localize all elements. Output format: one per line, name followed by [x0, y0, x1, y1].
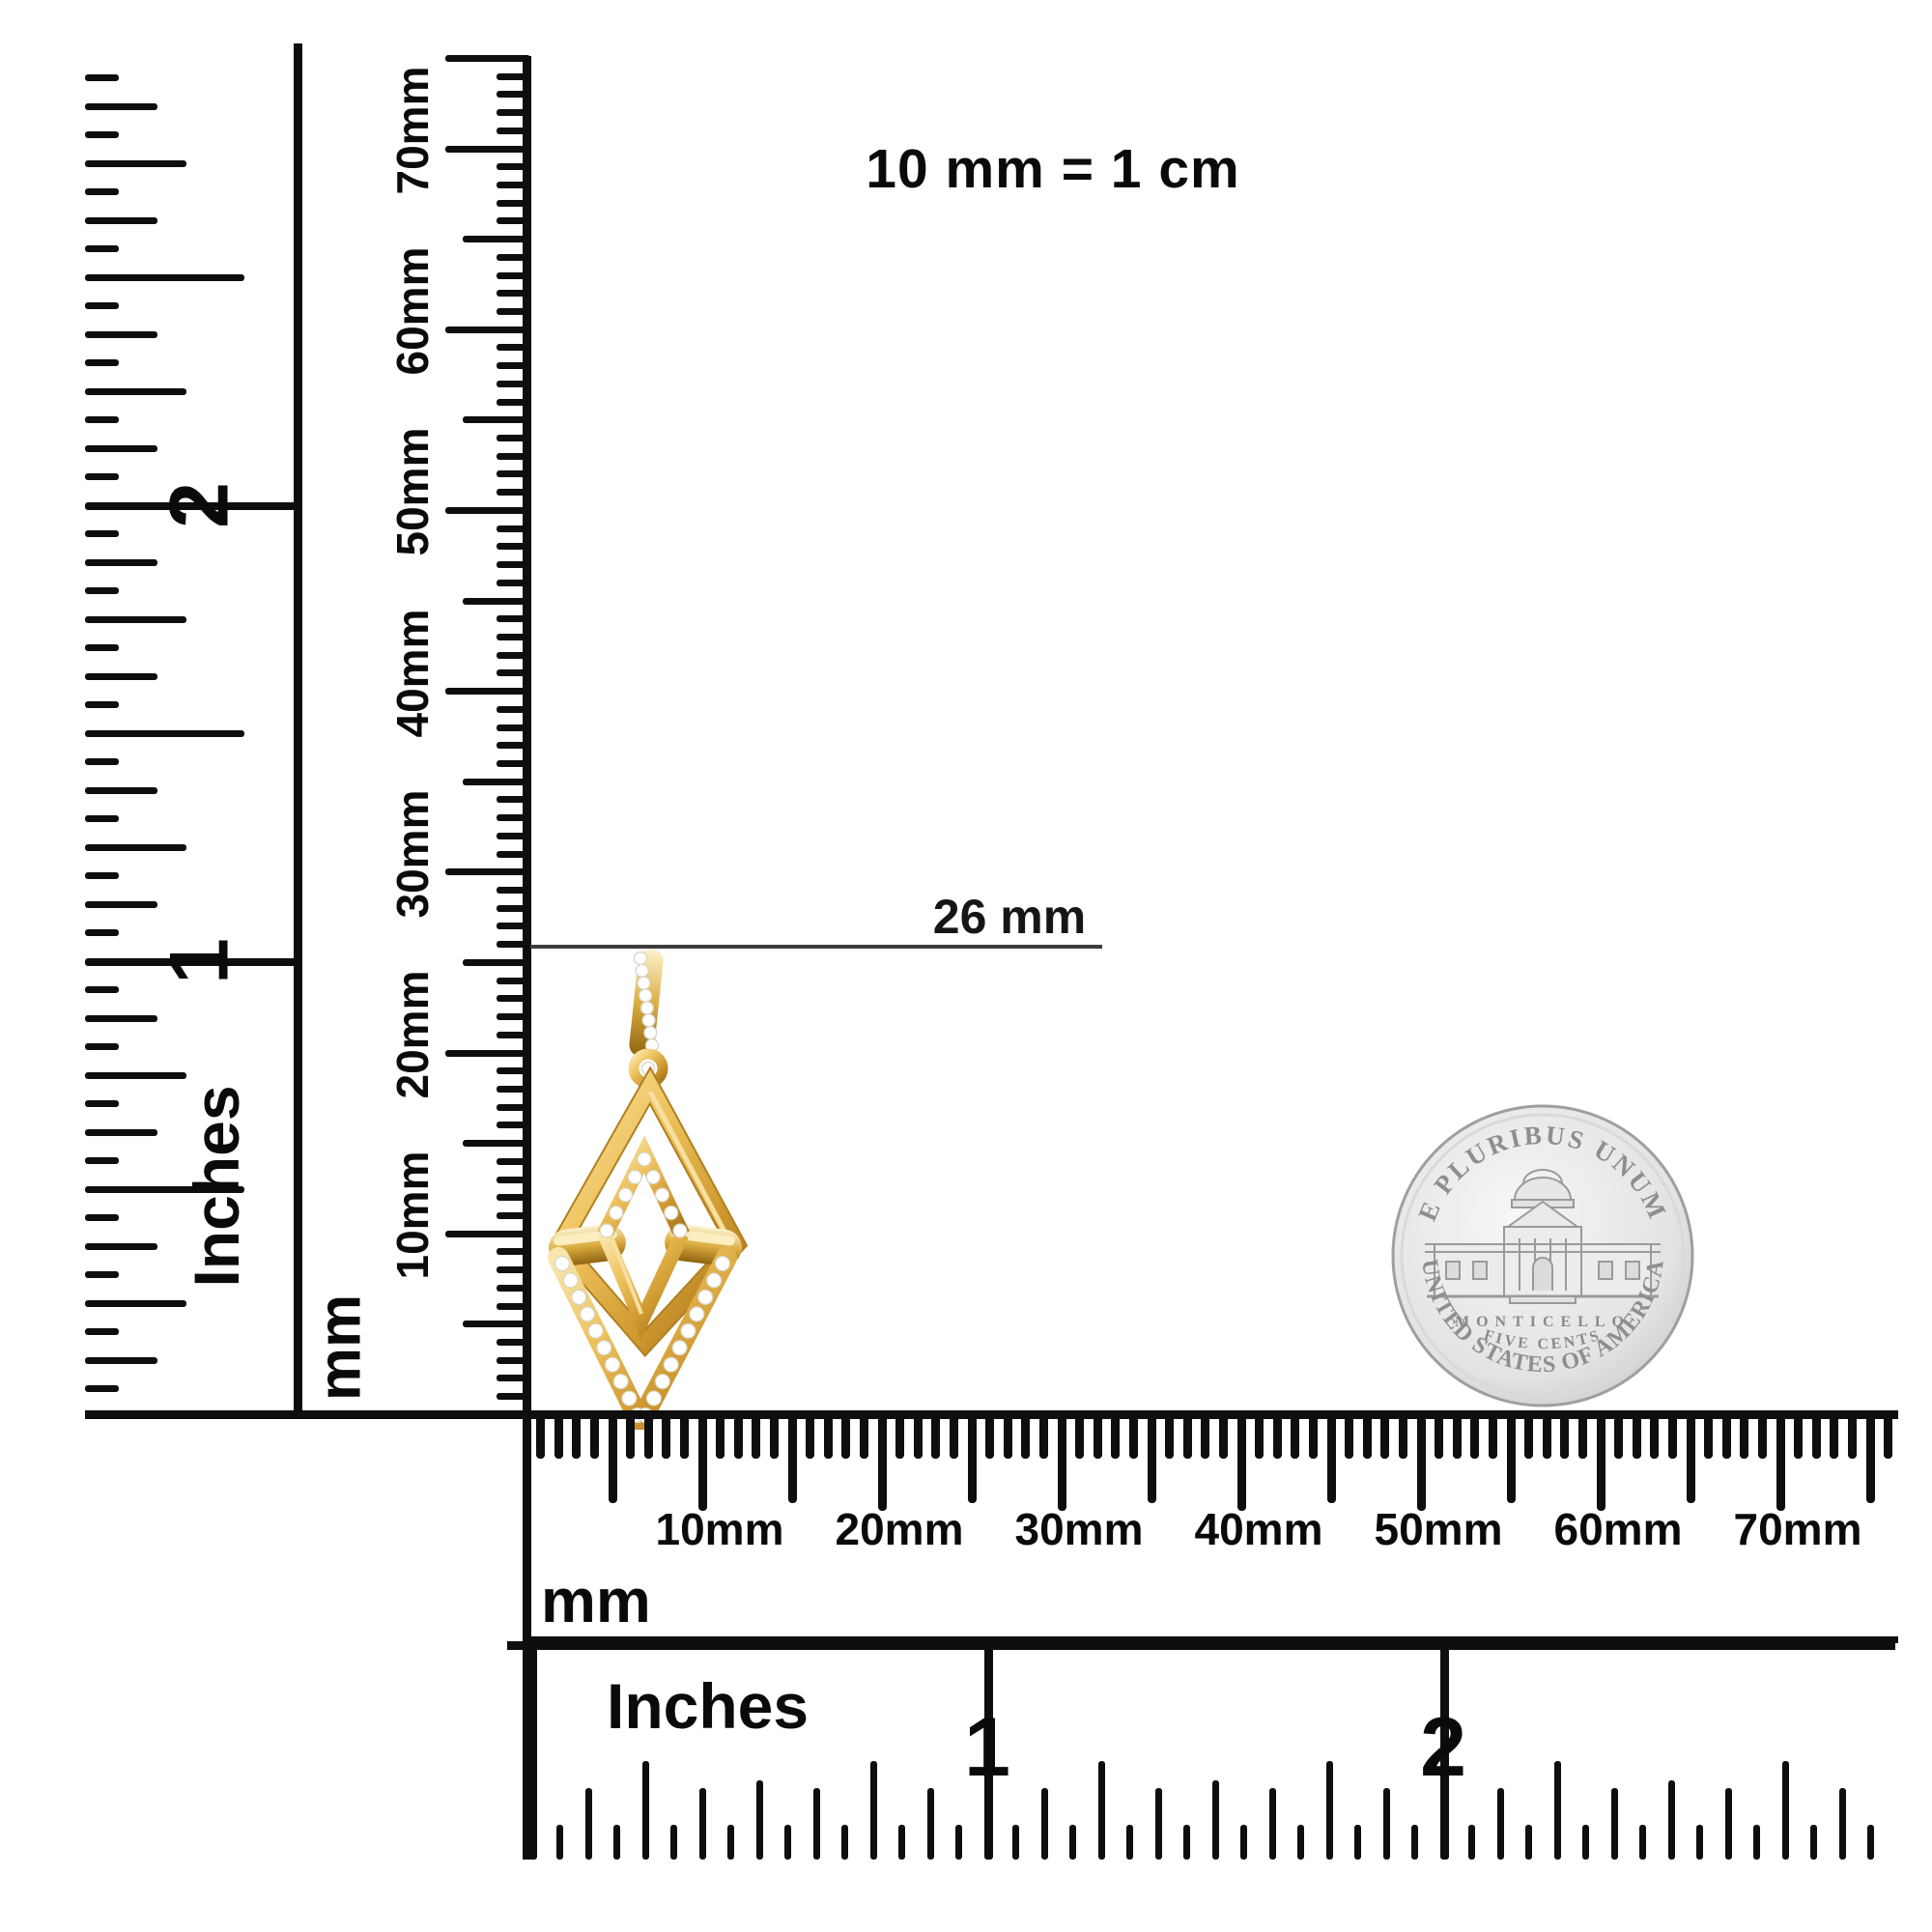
bottom-mm-ruler-unit: mm [541, 1565, 651, 1636]
vertical-mm-ruler-label: 40mm [386, 609, 439, 737]
vertical-mm-ruler-label: 30mm [386, 789, 439, 918]
vertical-mm-ruler-unit: mm [306, 1294, 375, 1401]
vertical-mm-ruler-label: 70mm [386, 67, 439, 195]
bottom-mm-ruler-left-edge [523, 1410, 531, 1642]
vertical-inches-ruler-edge [294, 43, 302, 1419]
bottom-mm-ruler-label: 50mm [1375, 1503, 1503, 1555]
inch-numeral: 2 [1420, 1700, 1466, 1796]
vertical-mm-ruler-label: 20mm [386, 971, 439, 1099]
pendant-image [522, 927, 811, 1430]
bottom-mm-ruler-label: 60mm [1554, 1503, 1683, 1555]
bottom-inches-ruler-label: Inches [607, 1669, 809, 1743]
bottom-mm-ruler-label: 30mm [1015, 1503, 1144, 1555]
vertical-mm-ruler-label: 10mm [386, 1151, 439, 1280]
bottom-mm-ruler-label: 10mm [656, 1503, 784, 1555]
bottom-mm-ruler-label: 40mm [1195, 1503, 1323, 1555]
vertical-mm-ruler-label: 50mm [386, 428, 439, 556]
bottom-mm-ruler-label: 70mm [1734, 1503, 1862, 1555]
coin-caption: MONTICELLO [1455, 1314, 1631, 1330]
pendant-bail [628, 948, 665, 1083]
nickel-coin-image: E PLURIBUS UNUM UNITED STATES OF AMERICA… [1378, 1092, 1707, 1420]
vertical-mm-ruler-label: 60mm [386, 247, 439, 376]
annotation-text: 26 mm [908, 889, 1111, 945]
bottom-inches-ruler-top-edge [507, 1641, 1895, 1650]
equivalence-note: 10 mm = 1 cm [850, 137, 1256, 201]
measurement-diagram: 10 mm = 1 cm 2 1 Inches 70mm60mm50mm40mm… [0, 0, 1932, 1932]
bottom-mm-ruler-label: 20mm [836, 1503, 964, 1555]
inch-numeral: 1 [153, 903, 248, 1019]
inch-numeral: 1 [964, 1700, 1010, 1796]
inch-numeral: 2 [153, 447, 248, 563]
vertical-inches-ruler-label: Inches [180, 1085, 253, 1287]
